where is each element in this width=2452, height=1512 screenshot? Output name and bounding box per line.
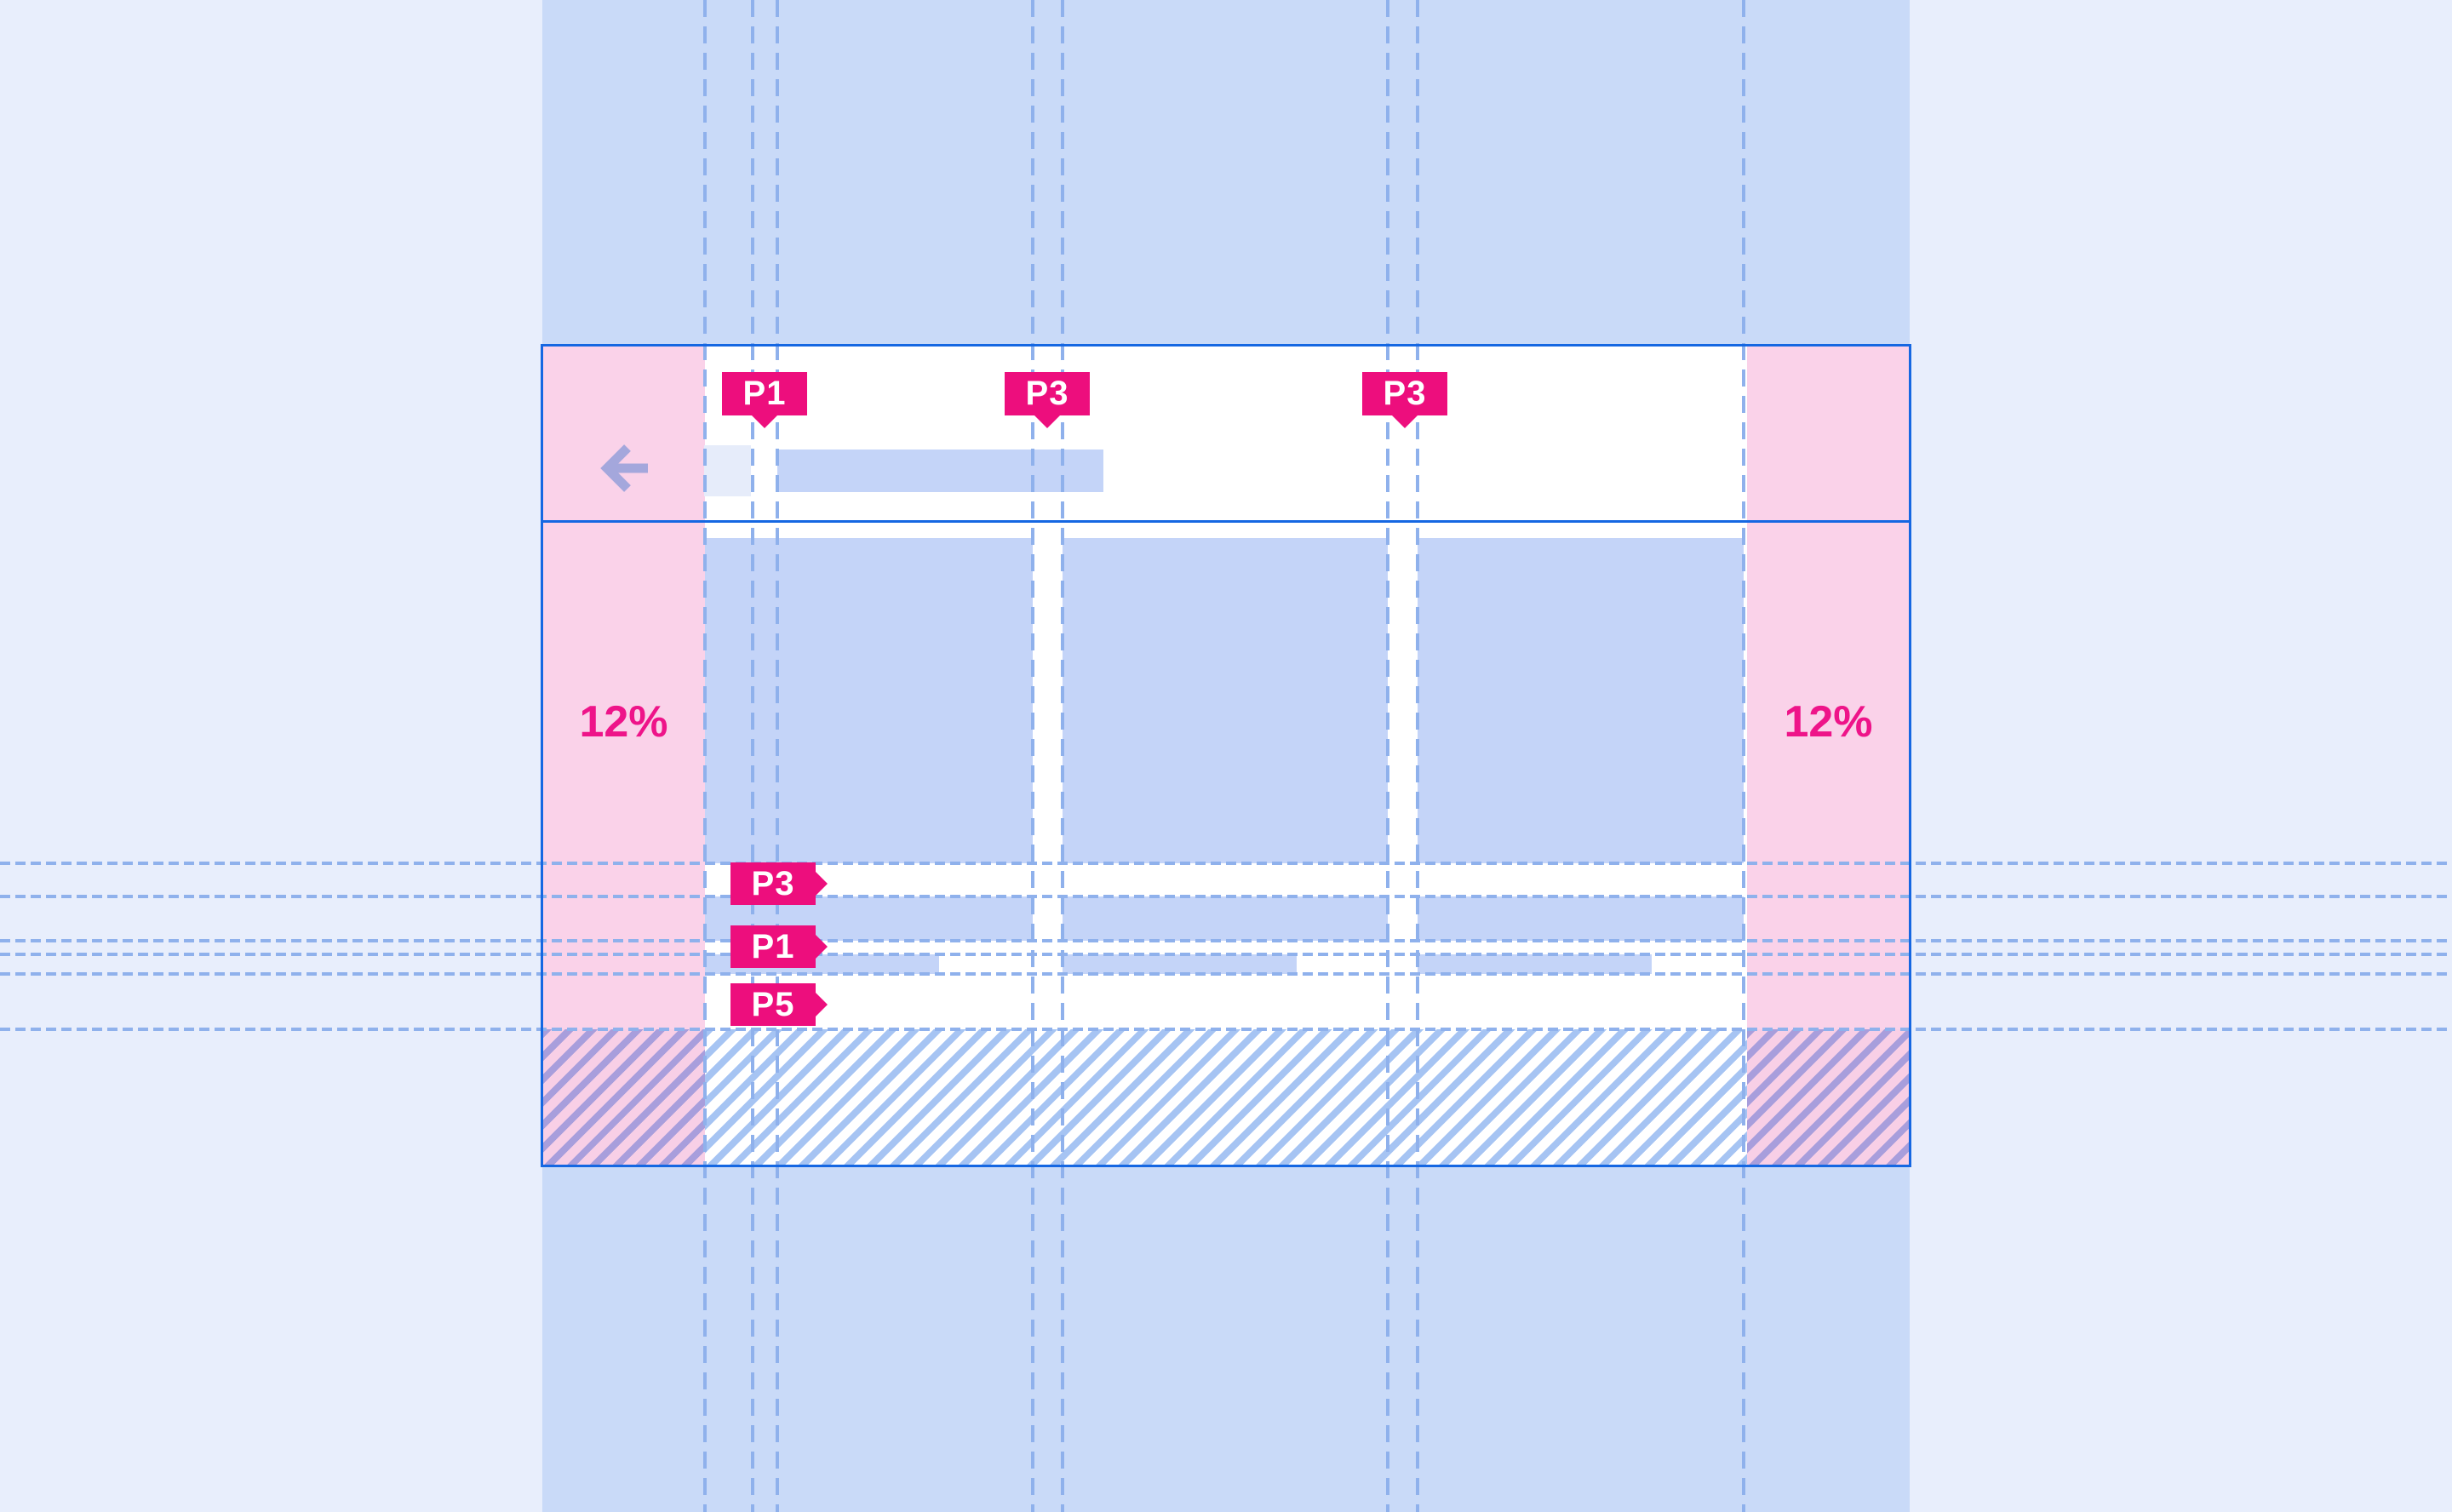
padding-chip-p1: P1 <box>722 372 807 415</box>
chip-label: P3 <box>1384 375 1427 413</box>
padding-chip-p3: P3 <box>1005 372 1090 415</box>
left-margin-label: 12% <box>542 698 705 746</box>
arrow-back-icon <box>597 441 651 495</box>
chip-label: P3 <box>752 865 795 903</box>
padding-chip-p3-row: P3 <box>730 862 816 905</box>
desktop-frame-border <box>541 344 1911 1167</box>
padding-chip-p5-row: P5 <box>730 983 816 1026</box>
right-margin-label: 12% <box>1747 698 1910 746</box>
padding-chip-p3: P3 <box>1362 372 1447 415</box>
back-button[interactable] <box>593 438 656 499</box>
padding-chip-p1-row: P1 <box>730 925 816 968</box>
chip-label: P5 <box>752 986 795 1024</box>
chip-label: P1 <box>752 928 795 966</box>
chip-label: P3 <box>1026 375 1069 413</box>
chip-label: P1 <box>743 375 787 413</box>
